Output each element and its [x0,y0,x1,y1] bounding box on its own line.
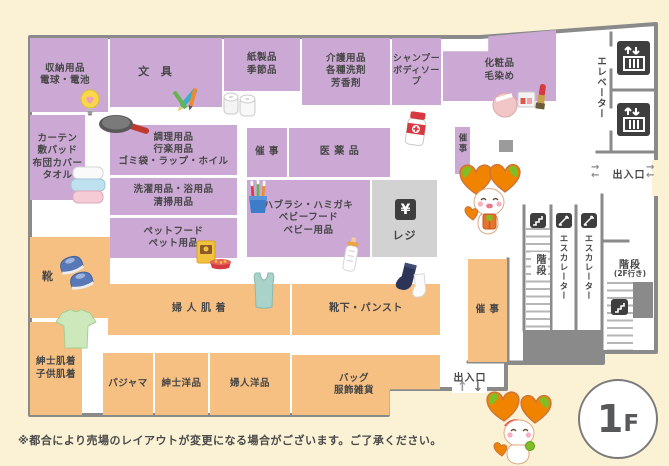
dept-event-strip-label: 催事 [456,133,468,154]
dept-mens-wear-label: 紳士洋品 [161,378,201,390]
camisole-icon [249,270,279,310]
arrow-up-icon: ↑ [457,380,468,395]
dept-cosmetics-label: 化粧品 毛染め [484,58,514,82]
register-label: レジ [372,227,437,243]
dept-storage-label: 収納用品 電球・電池 [40,63,98,87]
floor-map-1f: 収納用品 電球・電池 文 具 紙製品 季節品 介護用品 各種洗剤 芳香剤 シャン… [0,0,669,466]
yen-symbol: ¥ [401,202,411,218]
dept-pajama-label: パジャマ [108,378,148,390]
pet-food-icon [196,240,232,270]
dept-stationery: 文 具 [110,38,222,107]
exit-right-arrows-right: → ← [646,164,654,180]
dept-mens-wear: 紳士洋品 [155,353,208,415]
paper-rolls-icon [222,88,258,120]
dept-care: 介護用品 各種洗剤 芳香剤 [302,38,390,105]
towels-icon [70,165,106,205]
medicine-bottle-icon [402,110,430,148]
escalator-icon [556,213,572,228]
dept-womens-wear-label: 婦人洋品 [230,378,270,390]
escalator-right-label: エスカレーター [582,234,594,301]
floor-number: 1 [597,400,623,438]
tshirt-icon [54,308,98,350]
register-yen-icon: ¥ [395,199,416,220]
dept-mens-kids-underwear-label: 紳士肌着 子供肌着 [36,356,76,380]
dept-babycare-label: ハブラシ・ハミガキ ベビーフード ベビー用品 [264,200,354,236]
arrow-left-icon: ← [646,172,654,180]
dept-event-right-label: 催 事 [476,304,500,316]
dept-event-center: 催 事 [247,128,287,177]
dept-laundry-label: 洗濯用品・浴用品 清掃用品 [133,184,213,208]
stairs-icon [530,213,546,228]
floor-suffix: F [623,413,639,436]
dept-event-right: 催 事 [468,259,507,362]
mascot-character [456,162,522,237]
socks-icon [388,262,436,312]
stairs-2f-landing [633,282,653,318]
dept-bags-label: バッグ 服飾雑貨 [334,373,398,397]
baby-bottle-icon [338,236,364,274]
stationery-icon [170,86,204,116]
dept-paper-label: 紙製品 季節品 [247,52,277,76]
stairs-2f-steps [607,282,633,350]
arrow-left-icon: ← [591,172,599,180]
elevator-label: エレベーター [593,56,607,119]
dept-stationery-label: 文 具 [138,65,194,79]
dept-paper: 紙製品 季節品 [224,38,300,91]
floor-badge: 1 F [578,379,658,459]
dept-laundry: 洗濯用品・浴用品 清掃用品 [110,178,237,215]
shoes-icon [58,252,106,294]
elevator-icon [617,103,650,136]
mascot-character [478,388,560,466]
dept-pet-label: ペットフード ペット用品 [143,226,203,250]
exit-right-arrows-left: → ← [591,164,599,180]
stair-base-wall [523,330,603,363]
frying-pan-icon [98,110,152,140]
dept-care-label: 介護用品 各種洗剤 芳香剤 [326,53,366,89]
dept-medicine: 医 薬 品 [289,128,390,177]
stairs-label: 階段 [531,252,548,278]
stairs-icon [611,299,628,315]
toothbrush-cup-icon [245,180,271,214]
dept-womens-underwear-label: 婦 人 肌 着 [172,303,226,316]
disclaimer-note: ※都合により売場のレイアウトが変更になる場合がございます。ご了承ください。 [18,432,442,448]
escalator-icon [581,213,597,228]
cosmetics-icon [492,82,550,118]
dept-shampoo-label: シャンプー ボディソープ [392,54,441,89]
dept-event-center-label: 催 事 [255,146,279,158]
elevator-icon [617,41,650,75]
dept-shampoo: シャンプー ボディソープ [392,38,441,105]
pillar [499,140,513,152]
dept-pajama: パジャマ [103,353,153,415]
stairs-2f-note: (2F行き) [607,268,653,279]
dept-womens-wear: 婦人洋品 [210,353,290,415]
dept-medicine-label: 医 薬 品 [320,146,359,159]
stairs-steps [526,228,550,330]
escalator-left-label: エスカレーター [557,234,569,301]
